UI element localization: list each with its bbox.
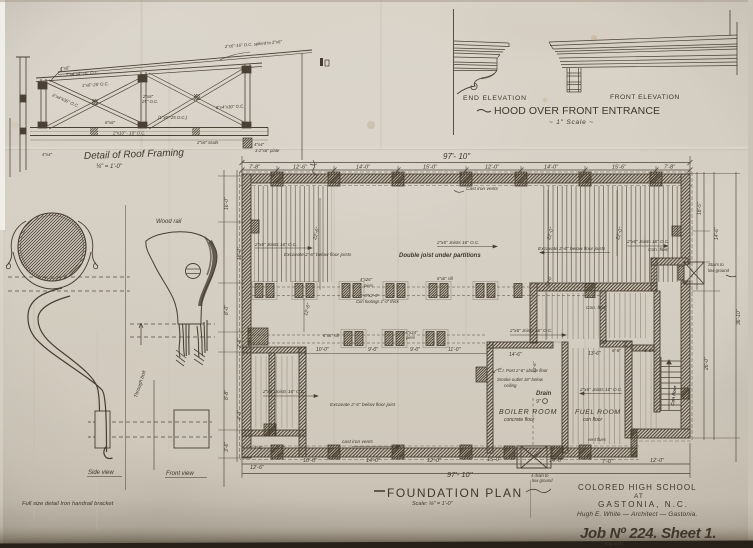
svg-text:C.I. Post 2'-6" above floor: C.I. Post 2'-6" above floor — [498, 368, 548, 373]
svg-text:7'-5": 7'-5" — [254, 445, 263, 450]
svg-text:12'-0": 12'-0" — [650, 458, 665, 464]
svg-text:2"x6" studs: 2"x6" studs — [196, 140, 219, 145]
svg-text:11'-0": 11'-0" — [448, 347, 461, 353]
svg-text:cast iron vents: cast iron vents — [342, 439, 374, 445]
svg-text:14'-0": 14'-0" — [356, 165, 371, 171]
svg-text:9'-0": 9'-0" — [368, 347, 378, 353]
svg-text:GASTONIA, N.C.: GASTONIA, N.C. — [598, 500, 689, 509]
svg-text:2"x10" - 16" O.C.: 2"x10" - 16" O.C. — [112, 131, 146, 136]
svg-text:3'-6": 3'-6" — [224, 442, 230, 452]
svg-text:concrete floor: concrete floor — [504, 417, 535, 423]
svg-text:15'-6": 15'-6" — [612, 165, 627, 171]
svg-text:Hugh E. White — Architect — Ga: Hugh E. White — Architect — Gastonia. — [577, 511, 697, 518]
svg-text:7'-8": 7'-8" — [664, 165, 676, 171]
svg-text:Con footings 1'-0" thick: Con footings 1'-0" thick — [356, 299, 400, 304]
svg-text:AT: AT — [634, 493, 644, 500]
svg-text:6"x6": 6"x6" — [105, 120, 115, 125]
svg-text:2"x6" Joists 16" O.C.: 2"x6" Joists 16" O.C. — [579, 387, 622, 392]
svg-text:3-2"x6" plate: 3-2"x6" plate — [255, 148, 280, 153]
svg-text:18'-0": 18'-0" — [237, 247, 243, 260]
svg-text:2"x6" Joists 16" O.C.: 2"x6" Joists 16" O.C. — [509, 328, 552, 333]
svg-text:piers: piers — [363, 283, 374, 288]
svg-text:14'-0": 14'-0" — [544, 165, 559, 171]
svg-text:piers: piers — [405, 335, 416, 340]
svg-text:13'-6": 13'-6" — [588, 351, 601, 357]
svg-text:Job Nº 224. Sheet 1.: Job Nº 224. Sheet 1. — [580, 525, 716, 542]
svg-text:4'-9": 4'-9" — [276, 445, 285, 450]
svg-text:COLORED HIGH SCHOOL: COLORED HIGH SCHOOL — [578, 483, 697, 492]
svg-text:14'-6": 14'-6" — [532, 361, 537, 373]
svg-text:6'-0": 6'-0" — [644, 348, 653, 353]
svg-text:16'-0": 16'-0" — [224, 197, 230, 210]
svg-text:36'-10": 36'-10" — [736, 309, 742, 325]
svg-text:Excavate 2'-6" below floor joi: Excavate 2'-6" below floor joist — [330, 402, 396, 408]
svg-text:12'-6": 12'-6" — [250, 465, 265, 471]
svg-text:25" O.C.: 25" O.C. — [141, 99, 158, 104]
svg-text:¼" = 1'-0": ¼" = 1'-0" — [96, 164, 123, 170]
svg-text:vent flues: vent flues — [588, 437, 607, 442]
svg-text:14'-6": 14'-6" — [509, 352, 522, 358]
svg-text:Smoke outlet 18" below: Smoke outlet 18" below — [497, 377, 544, 382]
svg-text:12'-0": 12'-0" — [427, 458, 442, 464]
svg-text:Excavate 2'-6" below floor joi: Excavate 2'-6" below floor joists — [538, 246, 606, 252]
svg-text:Drain: Drain — [536, 391, 552, 397]
svg-text:4"x4": 4"x4" — [254, 142, 264, 147]
svg-text:Con. floor: Con. floor — [586, 305, 607, 311]
svg-text:Stairs to: Stairs to — [708, 262, 724, 267]
svg-text:14'-0": 14'-0" — [366, 458, 381, 464]
svg-text:1'-8"x2'-8": 1'-8"x2'-8" — [360, 293, 379, 298]
svg-text:6'-6": 6'-6" — [612, 348, 621, 353]
svg-text:4"x26": 4"x26" — [360, 277, 373, 282]
svg-text:8'-8": 8'-8" — [224, 390, 230, 400]
svg-text:4"x4": 4"x4" — [42, 152, 52, 157]
svg-text:ceiling: ceiling — [504, 383, 517, 388]
svg-text:26'-0": 26'-0" — [704, 357, 710, 371]
svg-text:9'-0": 9'-0" — [410, 347, 420, 353]
svg-text:15'-0": 15'-0" — [487, 457, 502, 463]
svg-text:Front view: Front view — [166, 471, 194, 477]
svg-text:18'-5": 18'-5" — [697, 202, 703, 215]
svg-text:7'-8": 7'-8" — [249, 165, 261, 171]
svg-text:14'-6": 14'-6" — [714, 227, 720, 240]
svg-text:low ground: low ground — [708, 268, 730, 273]
svg-text:~ 1" Scale ~: ~ 1" Scale ~ — [549, 119, 594, 126]
svg-text:FRONT ELEVATION: FRONT ELEVATION — [610, 94, 680, 101]
svg-text:Con. floor: Con. floor — [648, 247, 669, 253]
svg-text:HOOD OVER FRONT ENTRANCE: HOOD OVER FRONT ENTRANCE — [494, 105, 660, 117]
svg-text:con floor: con floor — [583, 417, 603, 423]
svg-text:2"x6" Joists 16" O.C.: 2"x6" Joists 16" O.C. — [436, 240, 479, 245]
svg-text:6"x6" sill: 6"x6" sill — [323, 333, 340, 338]
svg-text:Wood rail: Wood rail — [156, 219, 182, 225]
svg-text:Side view: Side view — [88, 470, 114, 476]
svg-text:97'- 10": 97'- 10" — [443, 152, 471, 161]
svg-text:Excavate 2'-6" below floor joi: Excavate 2'-6" below floor joists — [284, 252, 352, 258]
svg-text:Cast iron vents: Cast iron vents — [466, 186, 499, 192]
svg-text:FUEL ROOM: FUEL ROOM — [575, 409, 621, 416]
svg-text:2"x6" Joists 16" O.C.: 2"x6" Joists 16" O.C. — [254, 242, 297, 247]
svg-text:12'-0": 12'-0" — [485, 165, 500, 171]
svg-text:9": 9" — [536, 399, 541, 405]
svg-text:6"x6" sill: 6"x6" sill — [437, 276, 454, 281]
svg-text:Scale: ⅛" = 1'-0": Scale: ⅛" = 1'-0" — [412, 501, 454, 507]
svg-text:8'-0": 8'-0" — [224, 305, 230, 315]
svg-text:7'-0": 7'-0" — [602, 459, 614, 465]
svg-text:Full size detail Iron handrail: Full size detail Iron handrail bracket — [22, 501, 114, 507]
svg-text:END ELEVATION: END ELEVATION — [463, 95, 527, 102]
svg-text:(1"x6"-25 O.C.): (1"x6"-25 O.C.) — [158, 115, 188, 120]
svg-text:FOUNDATION PLAN: FOUNDATION PLAN — [387, 486, 523, 500]
svg-text:10'-0": 10'-0" — [303, 458, 318, 464]
svg-text:4'-0": 4'-0" — [237, 410, 243, 420]
svg-text:Aug 1925: Aug 1925 — [603, 541, 624, 546]
svg-text:2"x6" Joists 16" O.C.: 2"x6" Joists 16" O.C. — [262, 389, 305, 394]
svg-text:low ground: low ground — [532, 478, 553, 483]
svg-text:BOILER ROOM: BOILER ROOM — [499, 409, 557, 416]
svg-text:12'-6": 12'-6" — [293, 165, 308, 171]
svg-text:Double joist under partitions: Double joist under partitions — [399, 253, 481, 259]
svg-text:15'-0": 15'-0" — [423, 165, 438, 171]
svg-text:14'-0": 14'-0" — [549, 458, 564, 464]
svg-text:2"x6" Joists 16" O.C.: 2"x6" Joists 16" O.C. — [626, 239, 669, 244]
svg-text:2'-6": 2'-6" — [237, 338, 243, 349]
svg-text:10'-0": 10'-0" — [316, 347, 329, 353]
svg-text:97'- 10": 97'- 10" — [447, 470, 473, 479]
